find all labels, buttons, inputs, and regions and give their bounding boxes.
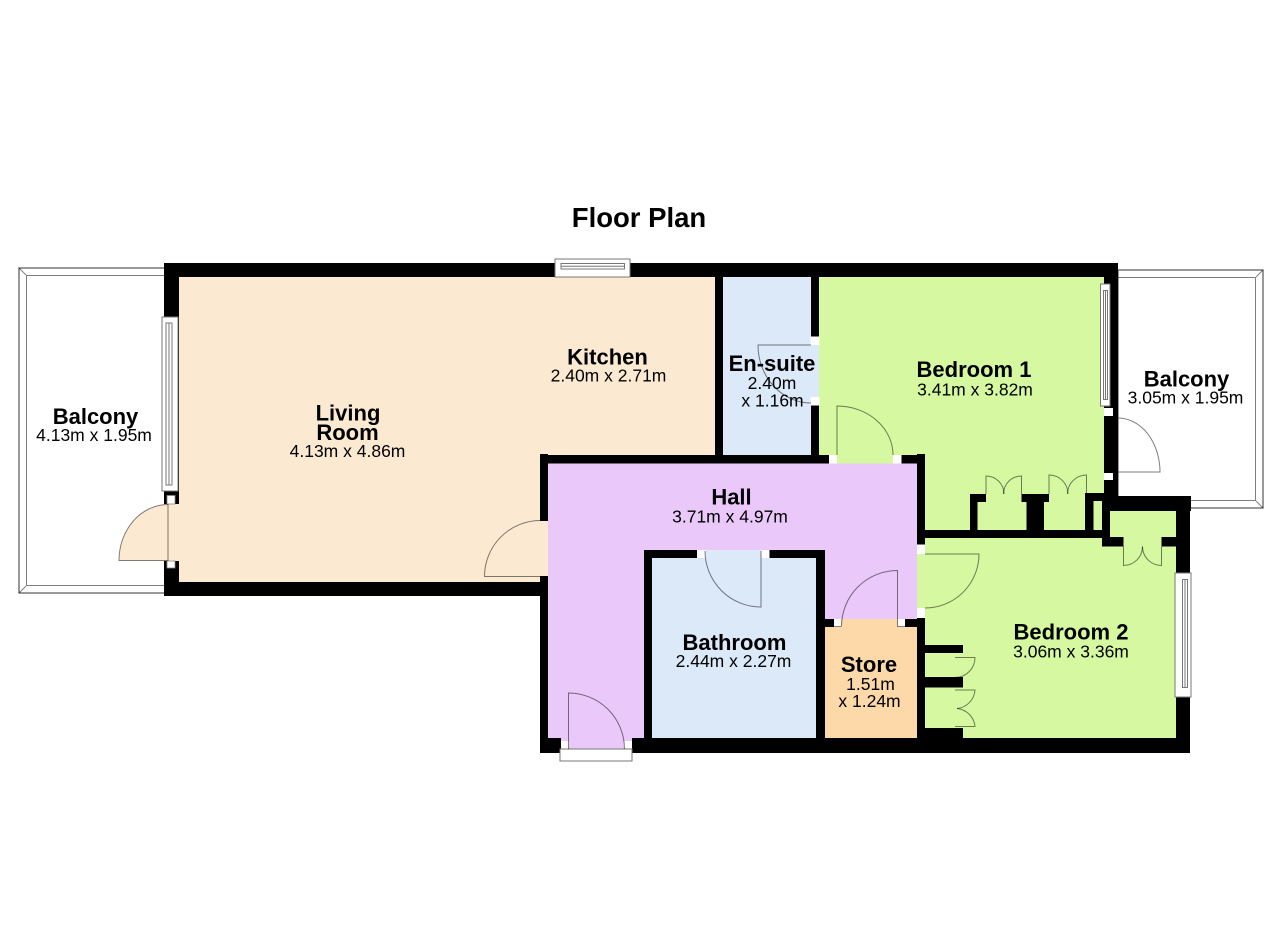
svg-text:x 1.24m: x 1.24m	[838, 691, 900, 711]
svg-text:Floor Plan: Floor Plan	[572, 202, 706, 233]
svg-text:4.13m x 1.95m: 4.13m x 1.95m	[36, 425, 152, 445]
svg-text:4.13m x 4.86m: 4.13m x 4.86m	[290, 441, 406, 461]
svg-text:3.05m x 1.95m: 3.05m x 1.95m	[1128, 388, 1244, 408]
svg-text:3.41m x 3.82m: 3.41m x 3.82m	[917, 380, 1033, 400]
svg-text:3.71m x 4.97m: 3.71m x 4.97m	[672, 507, 788, 527]
svg-text:2.40m x 2.71m: 2.40m x 2.71m	[551, 366, 667, 386]
svg-text:2.44m x 2.27m: 2.44m x 2.27m	[676, 651, 792, 671]
svg-text:3.06m x 3.36m: 3.06m x 3.36m	[1013, 642, 1129, 662]
svg-text:x 1.16m: x 1.16m	[741, 391, 803, 411]
svg-text:Bedroom 1: Bedroom 1	[917, 357, 1032, 382]
